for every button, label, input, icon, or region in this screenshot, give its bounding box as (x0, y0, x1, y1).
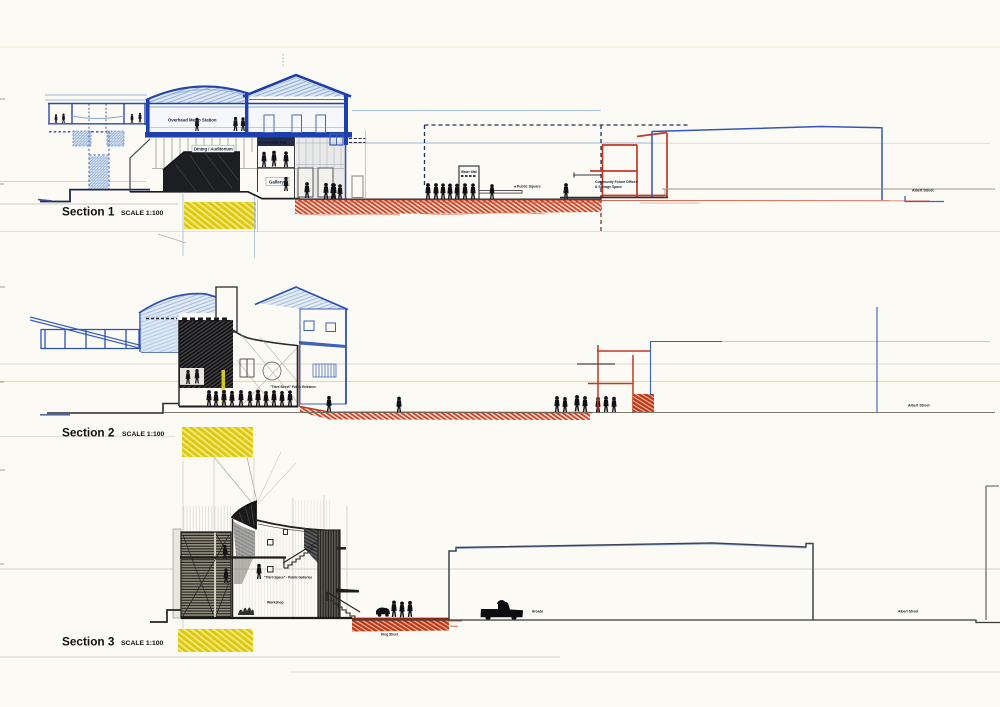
svg-text:"Third Street" Public Entrance: "Third Street" Public Entrance (270, 385, 316, 389)
svg-text:Gallery: Gallery (269, 179, 284, 184)
svg-text:Dining / Auditorium: Dining / Auditorium (194, 147, 233, 152)
svg-text:Albert Street: Albert Street (898, 610, 919, 614)
svg-text:Community hub: Community hub (259, 141, 287, 145)
svg-text:Arcade: Arcade (532, 610, 543, 614)
svg-text:SCALE 1:100: SCALE 1:100 (122, 431, 165, 438)
svg-text:Overhead Metro Station: Overhead Metro Station (168, 118, 217, 123)
svg-text:Albert Street: Albert Street (908, 404, 930, 408)
svg-text:SCALE 1:100: SCALE 1:100 (121, 640, 164, 647)
svg-text:SCALE 1:100: SCALE 1:100 (121, 210, 164, 217)
svg-text:& Storage Space: & Storage Space (595, 185, 622, 189)
svg-text:Section 2: Section 2 (62, 426, 115, 440)
svg-text:Section 3: Section 3 (62, 635, 115, 649)
svg-text:"Third Space" - Public Galleri: "Third Space" - Public Galleries (264, 576, 312, 580)
svg-text:Community Forum Offices: Community Forum Offices (595, 180, 638, 184)
svg-text:King Street: King Street (381, 633, 399, 637)
svg-text:Albert Street: Albert Street (912, 189, 934, 193)
svg-text:Water Wall: Water Wall (461, 170, 477, 174)
svg-text:Workshop: Workshop (267, 601, 284, 605)
svg-text:Section 1: Section 1 (62, 205, 115, 219)
svg-text:◂ Public Square: ◂ Public Square (513, 185, 541, 189)
